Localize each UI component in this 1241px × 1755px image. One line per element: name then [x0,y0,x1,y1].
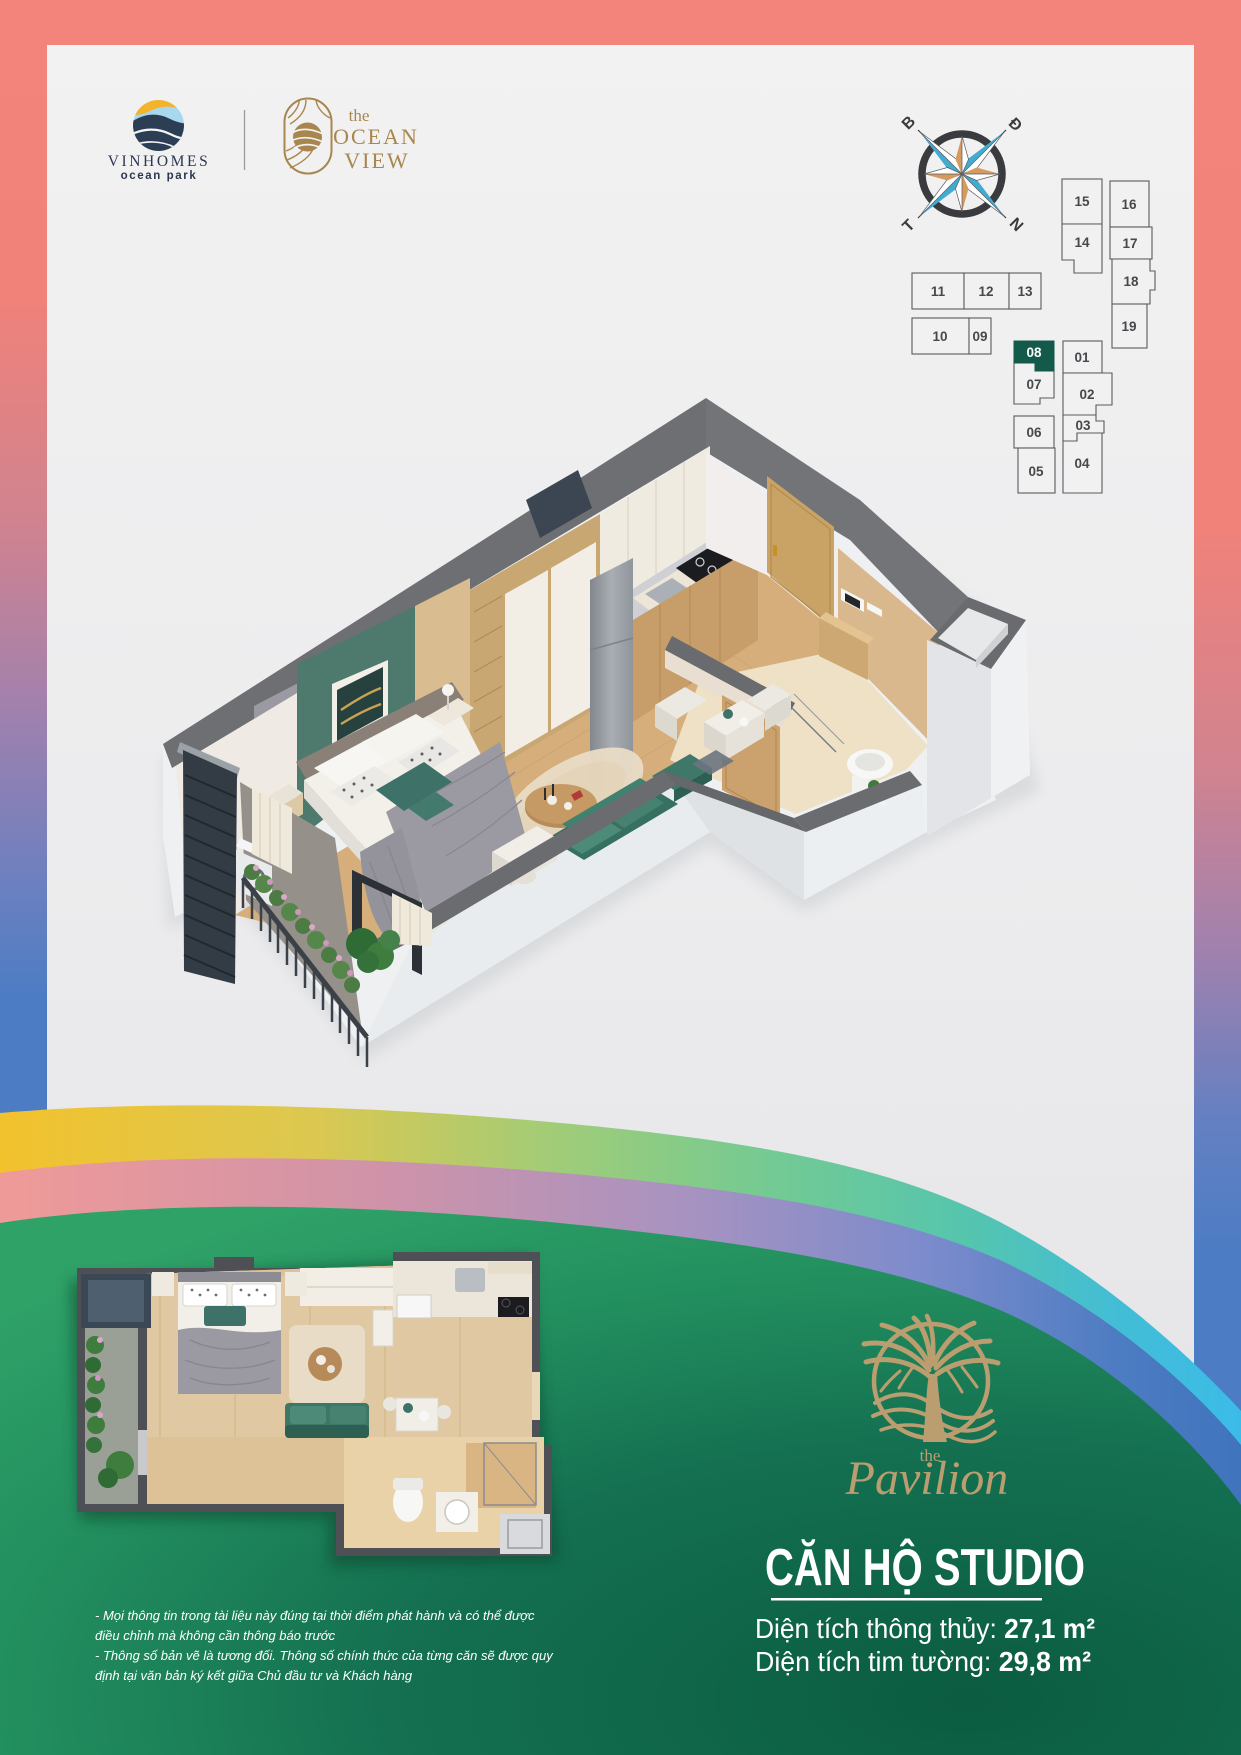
svg-text:13: 13 [1017,284,1033,299]
svg-text:Diện tích thông thủy: 27,1 m²: Diện tích thông thủy: 27,1 m² [755,1613,1095,1644]
svg-text:12: 12 [978,284,993,299]
svg-text:08: 08 [1026,345,1042,360]
svg-text:điều chỉnh mà không cần thông: điều chỉnh mà không cần thông báo trước [95,1628,336,1643]
svg-text:07: 07 [1026,377,1041,392]
svg-text:01: 01 [1074,350,1090,365]
svg-text:OCEAN: OCEAN [333,124,419,149]
svg-text:Pavilion: Pavilion [845,1452,1009,1505]
svg-text:định tại văn bản ký kết giữa C: định tại văn bản ký kết giữa Chủ đầu tư … [95,1668,413,1683]
svg-text:09: 09 [972,329,987,344]
svg-text:17: 17 [1122,236,1137,251]
svg-text:02: 02 [1079,387,1094,402]
svg-text:10: 10 [932,329,947,344]
svg-text:- Mọi thông tin trong tài liệu: - Mọi thông tin trong tài liệu này đúng … [95,1608,535,1623]
svg-text:05: 05 [1028,464,1044,479]
svg-text:VIEW: VIEW [344,148,409,173]
svg-text:15: 15 [1074,194,1090,209]
svg-text:16: 16 [1121,197,1137,212]
svg-text:11: 11 [931,284,946,299]
svg-text:ocean park: ocean park [121,170,198,182]
svg-text:19: 19 [1121,319,1136,334]
svg-text:Diện tích tim tường: 29,8 m²: Diện tích tim tường: 29,8 m² [755,1646,1091,1677]
svg-text:18: 18 [1123,274,1139,289]
svg-text:03: 03 [1075,418,1091,433]
svg-text:06: 06 [1026,425,1042,440]
svg-text:the: the [349,106,370,125]
svg-text:14: 14 [1074,235,1090,250]
svg-text:CĂN HỘ STUDIO: CĂN HỘ STUDIO [765,1538,1085,1597]
svg-text:VINHOMES: VINHOMES [108,153,211,170]
svg-text:04: 04 [1074,456,1090,471]
svg-text:- Thông số bản vẽ là tương đối: - Thông số bản vẽ là tương đối. Thông số… [95,1648,554,1663]
